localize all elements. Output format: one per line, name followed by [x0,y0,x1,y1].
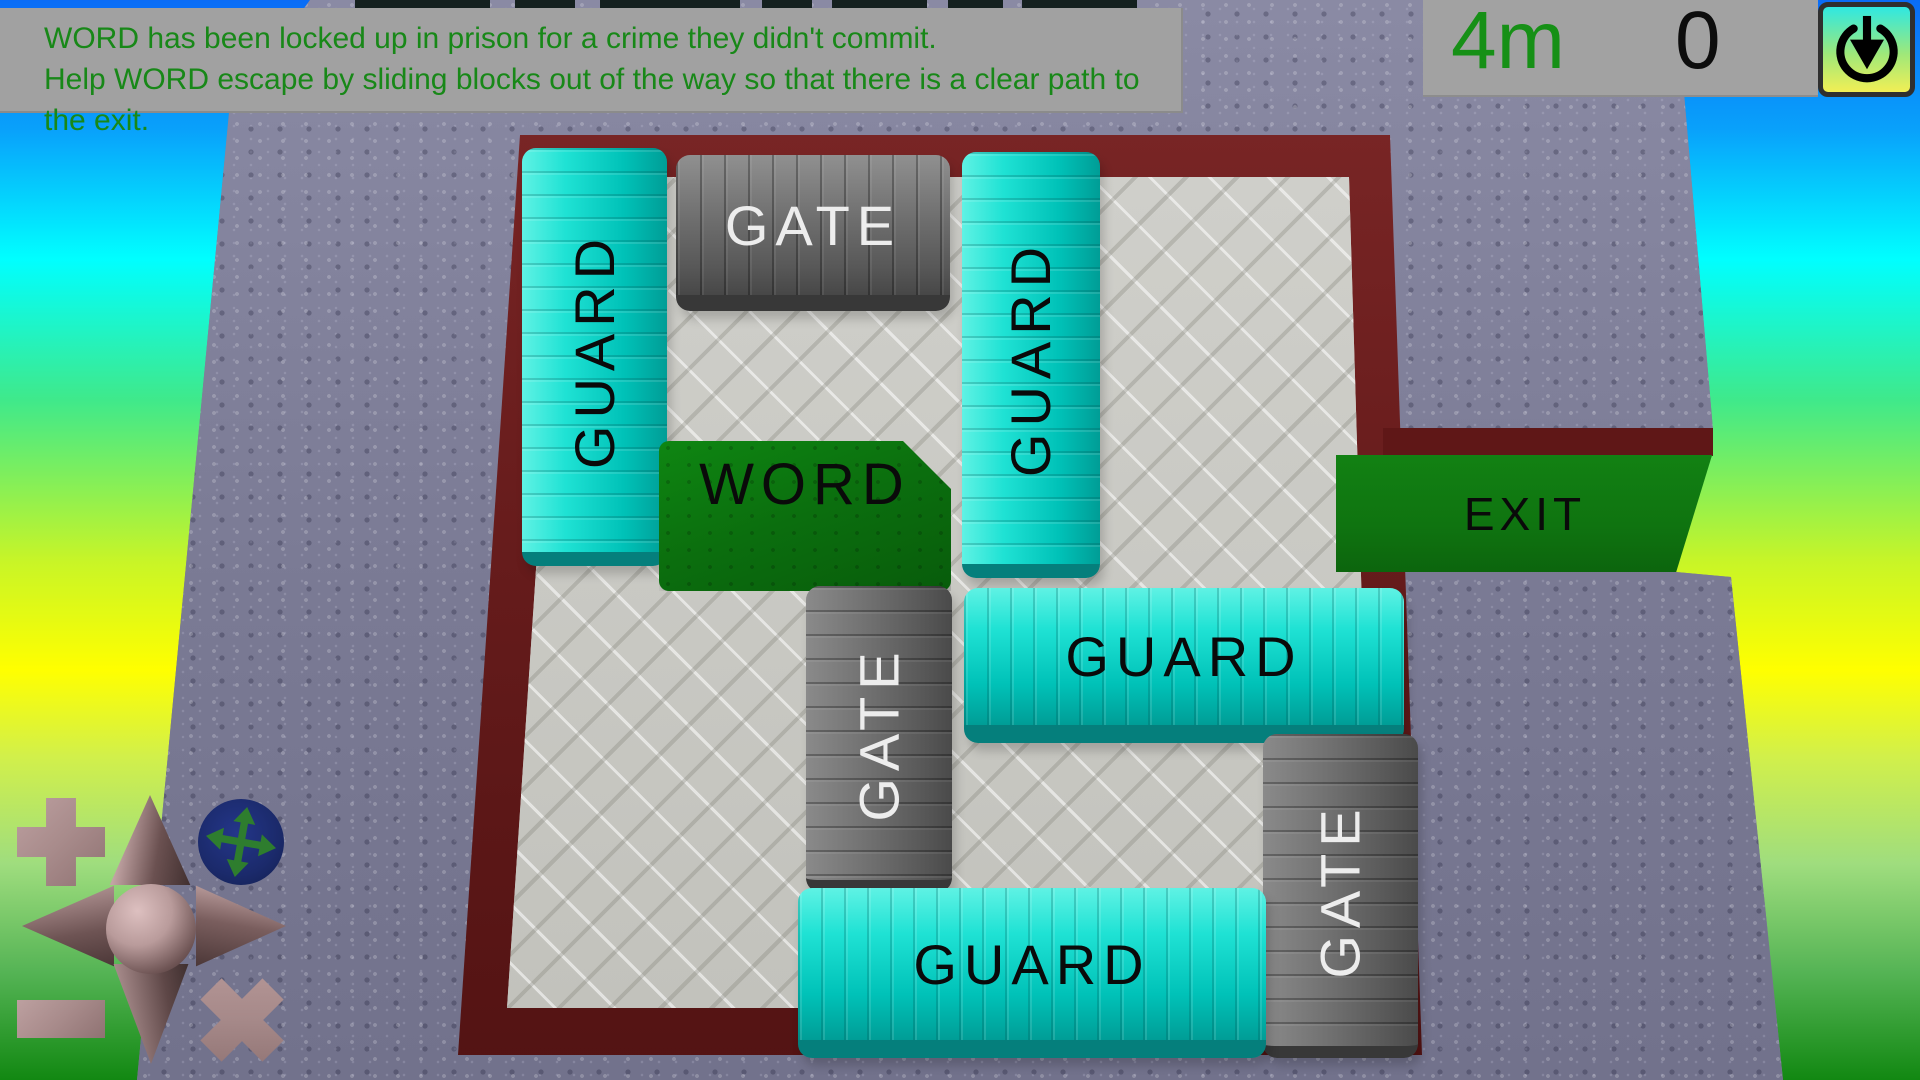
zoom-in-button[interactable] [17,798,105,886]
instruction-panel: WORD has been locked up in prison for a … [0,8,1183,113]
power-restart-down-arrow-icon [1830,13,1904,87]
exit-label: EXIT [1464,487,1586,541]
block-guard-middle-right[interactable]: GUARD [964,588,1404,743]
block-gate-bottom-right[interactable]: GATE [1263,734,1418,1058]
hud-panel: 4m 0 [1423,0,1818,97]
block-gate-top[interactable]: GATE [676,155,950,311]
block-label: GUARD [999,239,1064,476]
block-word-prisoner[interactable]: WORD [659,441,951,591]
zoom-out-button[interactable] [17,1000,105,1038]
timer-value: 4m [1451,0,1565,88]
block-label: GUARD [1065,624,1302,689]
block-label: GUARD [562,231,627,468]
restart-button[interactable] [1818,2,1915,97]
game-scene: EXIT GUARD GATE GUARD WORD GUARD GATE GA… [0,0,1920,1080]
dpad-center-sphere[interactable] [106,884,196,974]
block-guard-bottom[interactable]: GUARD [798,888,1266,1058]
move-counter: 0 [1675,0,1721,88]
block-label: GATE [847,645,912,821]
four-way-pan-arrows-icon [204,805,278,879]
block-gate-middle[interactable]: GATE [806,586,952,892]
instruction-line-2: Help WORD escape by sliding blocks out o… [44,59,1181,141]
exit-corridor-wall [1383,428,1713,456]
block-guard-left[interactable]: GUARD [522,148,667,566]
block-label: WORD [699,451,911,518]
block-label: GATE [725,193,901,258]
block-guard-center-top[interactable]: GUARD [962,152,1100,578]
block-label: GUARD [913,932,1150,997]
block-label: GATE [1308,802,1373,978]
exit-corridor: EXIT [1336,455,1714,572]
pan-button[interactable] [198,799,284,885]
dpad-left-arrow[interactable] [22,884,114,968]
instruction-line-1: WORD has been locked up in prison for a … [44,18,1181,59]
